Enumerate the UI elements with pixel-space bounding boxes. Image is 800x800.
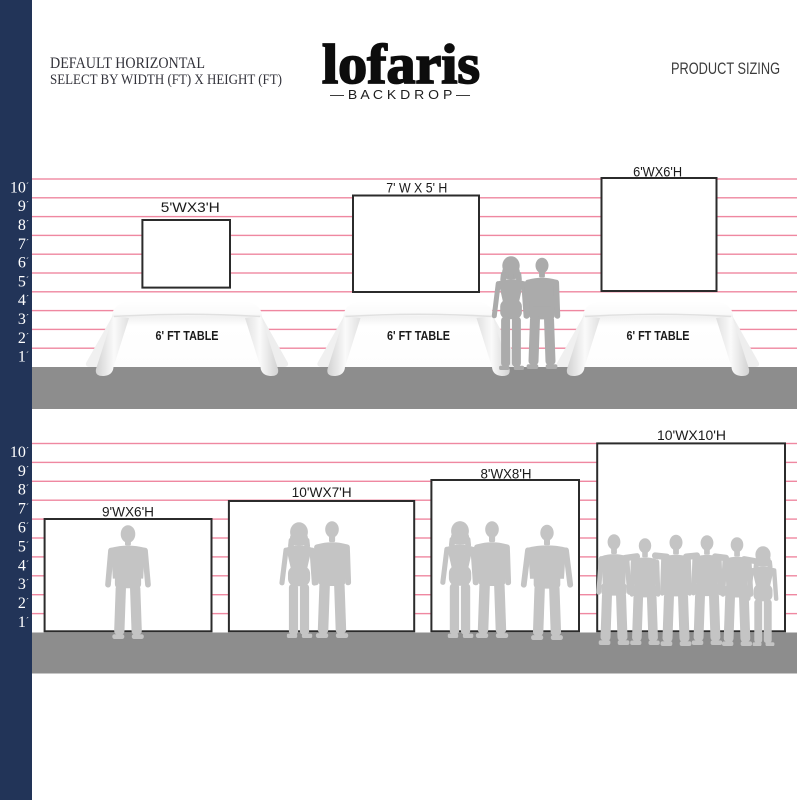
svg-text:6'WX6'H: 6'WX6'H	[633, 165, 682, 180]
svg-text:9'WX6'H: 9'WX6'H	[102, 505, 154, 520]
svg-text:6' FT TABLE: 6' FT TABLE	[627, 328, 690, 343]
svg-text:10'WX10'H: 10'WX10'H	[657, 428, 726, 443]
svg-text:lofaris: lofaris	[322, 34, 480, 96]
svg-text:6' FT TABLE: 6' FT TABLE	[156, 328, 219, 343]
svg-text:— B A C K D R O P —: — B A C K D R O P —	[330, 88, 471, 102]
svg-text:6' FT TABLE: 6' FT TABLE	[387, 328, 450, 343]
svg-text:PRODUCT SIZING: PRODUCT SIZING	[671, 60, 780, 78]
svg-text:8'WX8'H: 8'WX8'H	[481, 466, 532, 481]
svg-text:10'WX7'H: 10'WX7'H	[292, 485, 352, 500]
svg-text:7' W X 5' H: 7' W X 5' H	[386, 181, 447, 196]
svg-text:DEFAULT HORIZONTAL: DEFAULT HORIZONTAL	[50, 55, 205, 72]
svg-text:SELECT BY WIDTH (FT) X HEIGHT: SELECT BY WIDTH (FT) X HEIGHT (FT)	[50, 72, 282, 88]
svg-text:5'WX3'H: 5'WX3'H	[161, 200, 220, 215]
